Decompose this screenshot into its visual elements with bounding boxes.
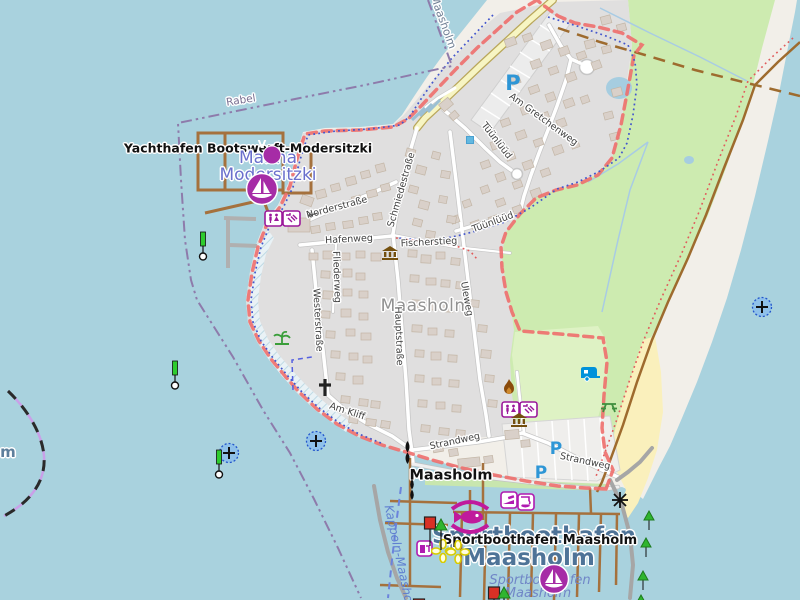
map-base-layers — [0, 0, 800, 600]
pond-small — [684, 156, 694, 164]
concrete-piers — [224, 218, 257, 268]
map-canvas[interactable]: Yachthafen Bootswerft-Modersitzki Marina… — [0, 0, 800, 600]
campsite-area — [512, 326, 608, 432]
anchorage-arc — [4, 391, 44, 516]
